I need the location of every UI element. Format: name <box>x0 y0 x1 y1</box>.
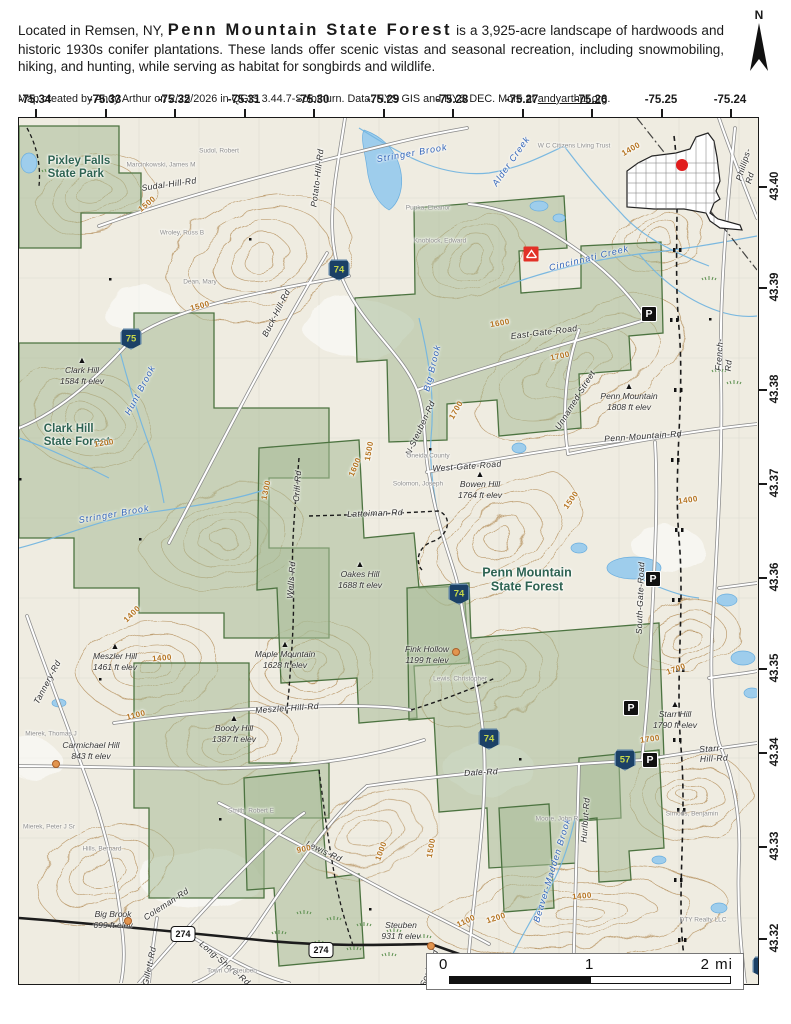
map-description: Located in Remsen, NY, Penn Mountain Sta… <box>18 20 724 76</box>
parking-icon: P <box>641 306 657 322</box>
parking-icon: P <box>645 571 661 587</box>
north-arrow-icon <box>749 23 769 73</box>
peak-fink-hollow: Fink Hollow1199 ft elev <box>371 644 483 665</box>
scale-zero: 0 <box>439 956 448 973</box>
parcel-label: Moore, John R <box>536 815 579 822</box>
parcel-label: Marcinkowski, James M <box>127 161 196 168</box>
parcel-label: Knoblock, Edward <box>414 237 466 244</box>
parcel-label: Pupka, Eleanor <box>406 204 450 211</box>
road-label: Dale-Rd <box>464 766 498 778</box>
peak-icon: ▲ <box>175 714 293 723</box>
road-label: Latteiman-Rd <box>347 507 403 519</box>
parcel-label: Smith, Robert E <box>228 807 274 814</box>
peak-carmichael-hill: Carmichael Hill843 ft elev <box>27 740 155 761</box>
road-label: French-Rd <box>713 336 735 371</box>
north-label: N <box>744 8 774 22</box>
lon-tick-label: -75.25 <box>645 94 678 106</box>
topo-map: Pixley Falls State Park Clark Hill State… <box>18 117 759 985</box>
parcel-label: Mierek, Thomas J <box>25 730 77 737</box>
lon-tick-label: -75.34 <box>19 94 52 106</box>
parcel-label: Town Of Steuben <box>207 967 257 974</box>
lat-tick-label: 43.39 <box>769 273 781 302</box>
scale-segment-filled <box>449 976 590 984</box>
parking-icon: P <box>623 700 639 716</box>
lat-tick-label: 43.40 <box>769 172 781 201</box>
lat-tick-label: 43.38 <box>769 375 781 404</box>
parcel-label: Wroley, Russ B <box>160 229 204 236</box>
benchmark-dot <box>427 942 435 950</box>
north-arrow: N <box>744 8 774 78</box>
parking-icon: P <box>642 752 658 768</box>
description-intro: Located in Remsen, NY, <box>18 23 164 38</box>
credit-suffix: . <box>607 93 610 105</box>
leanto-icon <box>524 247 539 262</box>
lon-tick-label: -75.29 <box>367 94 400 106</box>
parcel-label: Lewis, Christopher <box>433 675 487 682</box>
area-label-pixley: Pixley Falls State Park <box>48 155 111 181</box>
peak-clark-hill: ▲Clark Hill1584 ft elev <box>36 356 128 386</box>
contour-label: 1400 <box>572 891 593 902</box>
benchmark-dot <box>52 760 60 768</box>
lat-tick-label: 43.32 <box>769 924 781 953</box>
parcel-label: Dean, Mary <box>183 278 217 285</box>
peak-maple-mountain: ▲Maple Mountain1628 ft elev <box>224 640 346 670</box>
lon-tick-label: -75.33 <box>89 94 122 106</box>
lat-tick-label: 43.33 <box>769 832 781 861</box>
lat-tick-label: 43.37 <box>769 469 781 498</box>
peak-steuben: Steuben931 ft elev <box>347 920 455 941</box>
parcel-label: DTY Realty LLC <box>680 916 727 923</box>
parcel-label: Sudol, Robert <box>199 147 239 154</box>
parcel-label: Simons, Benjamin <box>666 810 718 817</box>
page-title: Penn Mountain State Forest <box>168 21 452 39</box>
lon-tick-label: -75.27 <box>506 94 539 106</box>
parcel-label: Oneida County <box>406 452 449 459</box>
location-dot <box>676 159 688 171</box>
benchmark-dot <box>124 917 132 925</box>
parcel-label: Solomon, Joseph <box>393 480 443 487</box>
peak-icon: ▲ <box>59 642 171 651</box>
scale-segment-empty <box>590 976 731 984</box>
scale-two: 2 mi <box>701 956 733 973</box>
parcel-label: Mierek, Peter J Sr <box>23 823 75 830</box>
peak-icon: ▲ <box>224 640 346 649</box>
route-shield-274: 274 <box>309 942 334 958</box>
lon-tick-label: -75.28 <box>436 94 469 106</box>
ny-state-inset-map <box>624 129 744 234</box>
parcel-label: Hills, Bernard <box>82 845 121 852</box>
area-label-penn-mountain: Penn Mountain State Forest <box>482 566 572 595</box>
peak-boody-hill: ▲Boody Hill1387 ft elev <box>175 714 293 744</box>
peak-icon: ▲ <box>301 560 419 569</box>
scale-bar: 0 1 2 mi <box>426 953 744 990</box>
lat-tick-label: 43.36 <box>769 563 781 592</box>
lon-tick-label: -75.32 <box>158 94 191 106</box>
map-canvas <box>19 118 757 983</box>
lon-tick-label: -75.30 <box>297 94 330 106</box>
contour-label: 1400 <box>152 653 173 664</box>
scale-one: 1 <box>585 956 594 973</box>
map-page: { "header": { "intro": "Located in Remse… <box>0 0 791 1024</box>
peak-oakes-hill: ▲Oakes Hill1688 ft elev <box>301 560 419 590</box>
benchmark-dot <box>452 648 460 656</box>
route-shield-274: 274 <box>171 926 196 942</box>
lon-tick-label: -75.31 <box>228 94 261 106</box>
lon-tick-label: -75.26 <box>575 94 608 106</box>
peak-icon: ▲ <box>36 356 128 365</box>
lat-tick-label: 43.35 <box>769 654 781 683</box>
road-label: Starr-Hill-Rd <box>699 742 739 764</box>
lon-tick-label: -75.24 <box>714 94 747 106</box>
parcel-label: W C Citizens Living Trust <box>538 142 611 149</box>
state-forest-polygons <box>19 126 664 966</box>
lat-tick-label: 43.34 <box>769 738 781 767</box>
